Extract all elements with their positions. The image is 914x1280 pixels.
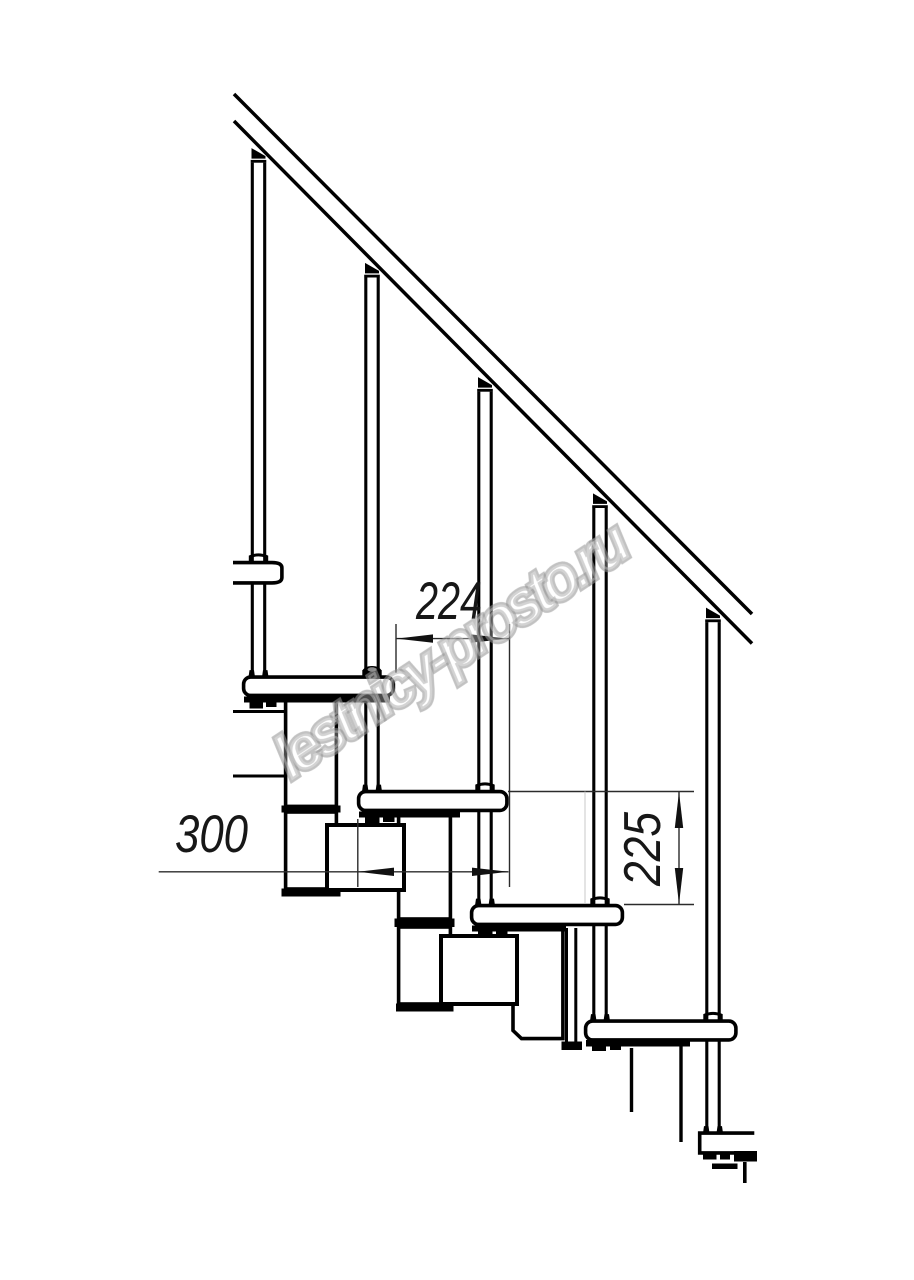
- svg-text:300: 300: [175, 805, 248, 864]
- svg-text:225: 225: [614, 811, 672, 887]
